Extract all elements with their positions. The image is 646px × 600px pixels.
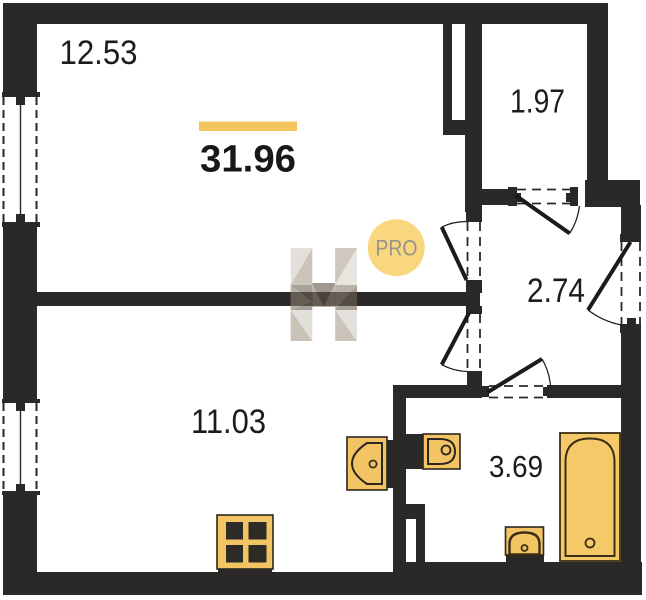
svg-text:1.97: 1.97 (510, 83, 565, 120)
svg-text:31.96: 31.96 (200, 139, 296, 181)
svg-text:12.53: 12.53 (60, 34, 138, 72)
svg-text:PRO: PRO (376, 236, 418, 261)
svg-text:3.69: 3.69 (489, 449, 543, 484)
svg-text:11.03: 11.03 (191, 403, 266, 441)
svg-text:2.74: 2.74 (527, 272, 585, 310)
